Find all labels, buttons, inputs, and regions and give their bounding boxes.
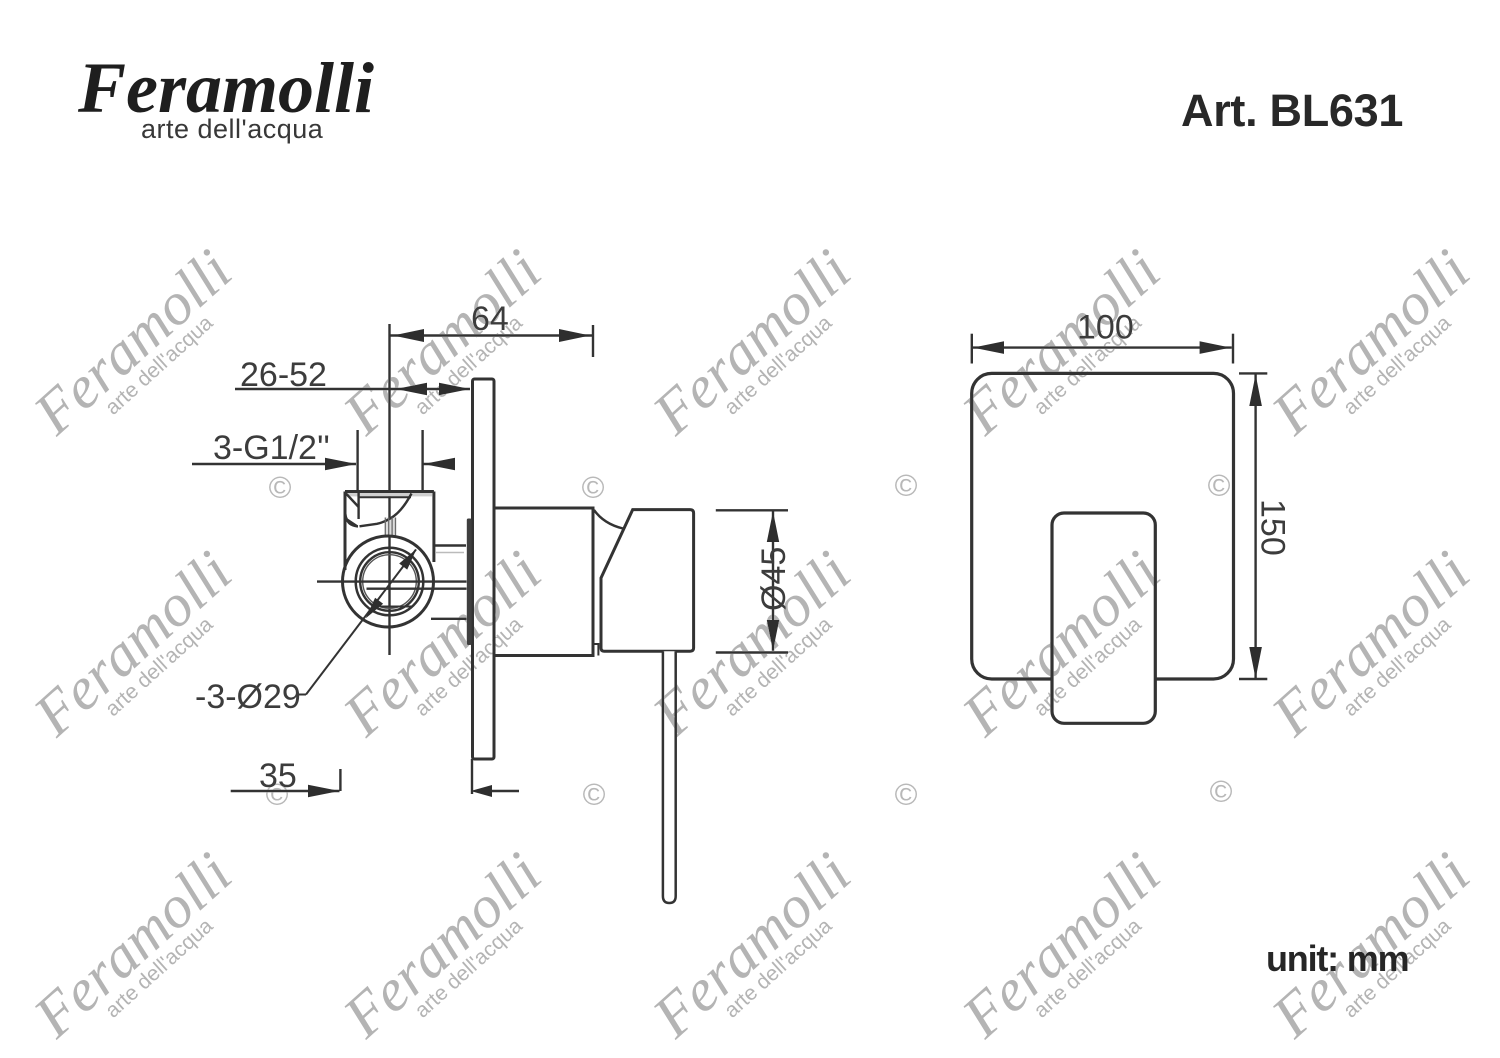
svg-text:©: © [1210,774,1233,809]
svg-text:-3-Ø29: -3-Ø29 [195,678,301,716]
svg-text:©: © [582,470,605,505]
svg-text:3-G1/2'': 3-G1/2'' [213,429,330,467]
svg-text:arte dell'acqua: arte dell'acqua [141,114,324,144]
svg-text:©: © [583,777,606,812]
svg-text:©: © [266,777,289,812]
svg-text:26-52: 26-52 [240,356,327,394]
svg-text:Art. BL631: Art. BL631 [1181,85,1403,136]
svg-text:©: © [1208,468,1231,503]
svg-text:©: © [895,777,918,812]
svg-text:©: © [269,470,292,505]
svg-text:150: 150 [1254,499,1292,556]
svg-text:©: © [895,468,918,503]
